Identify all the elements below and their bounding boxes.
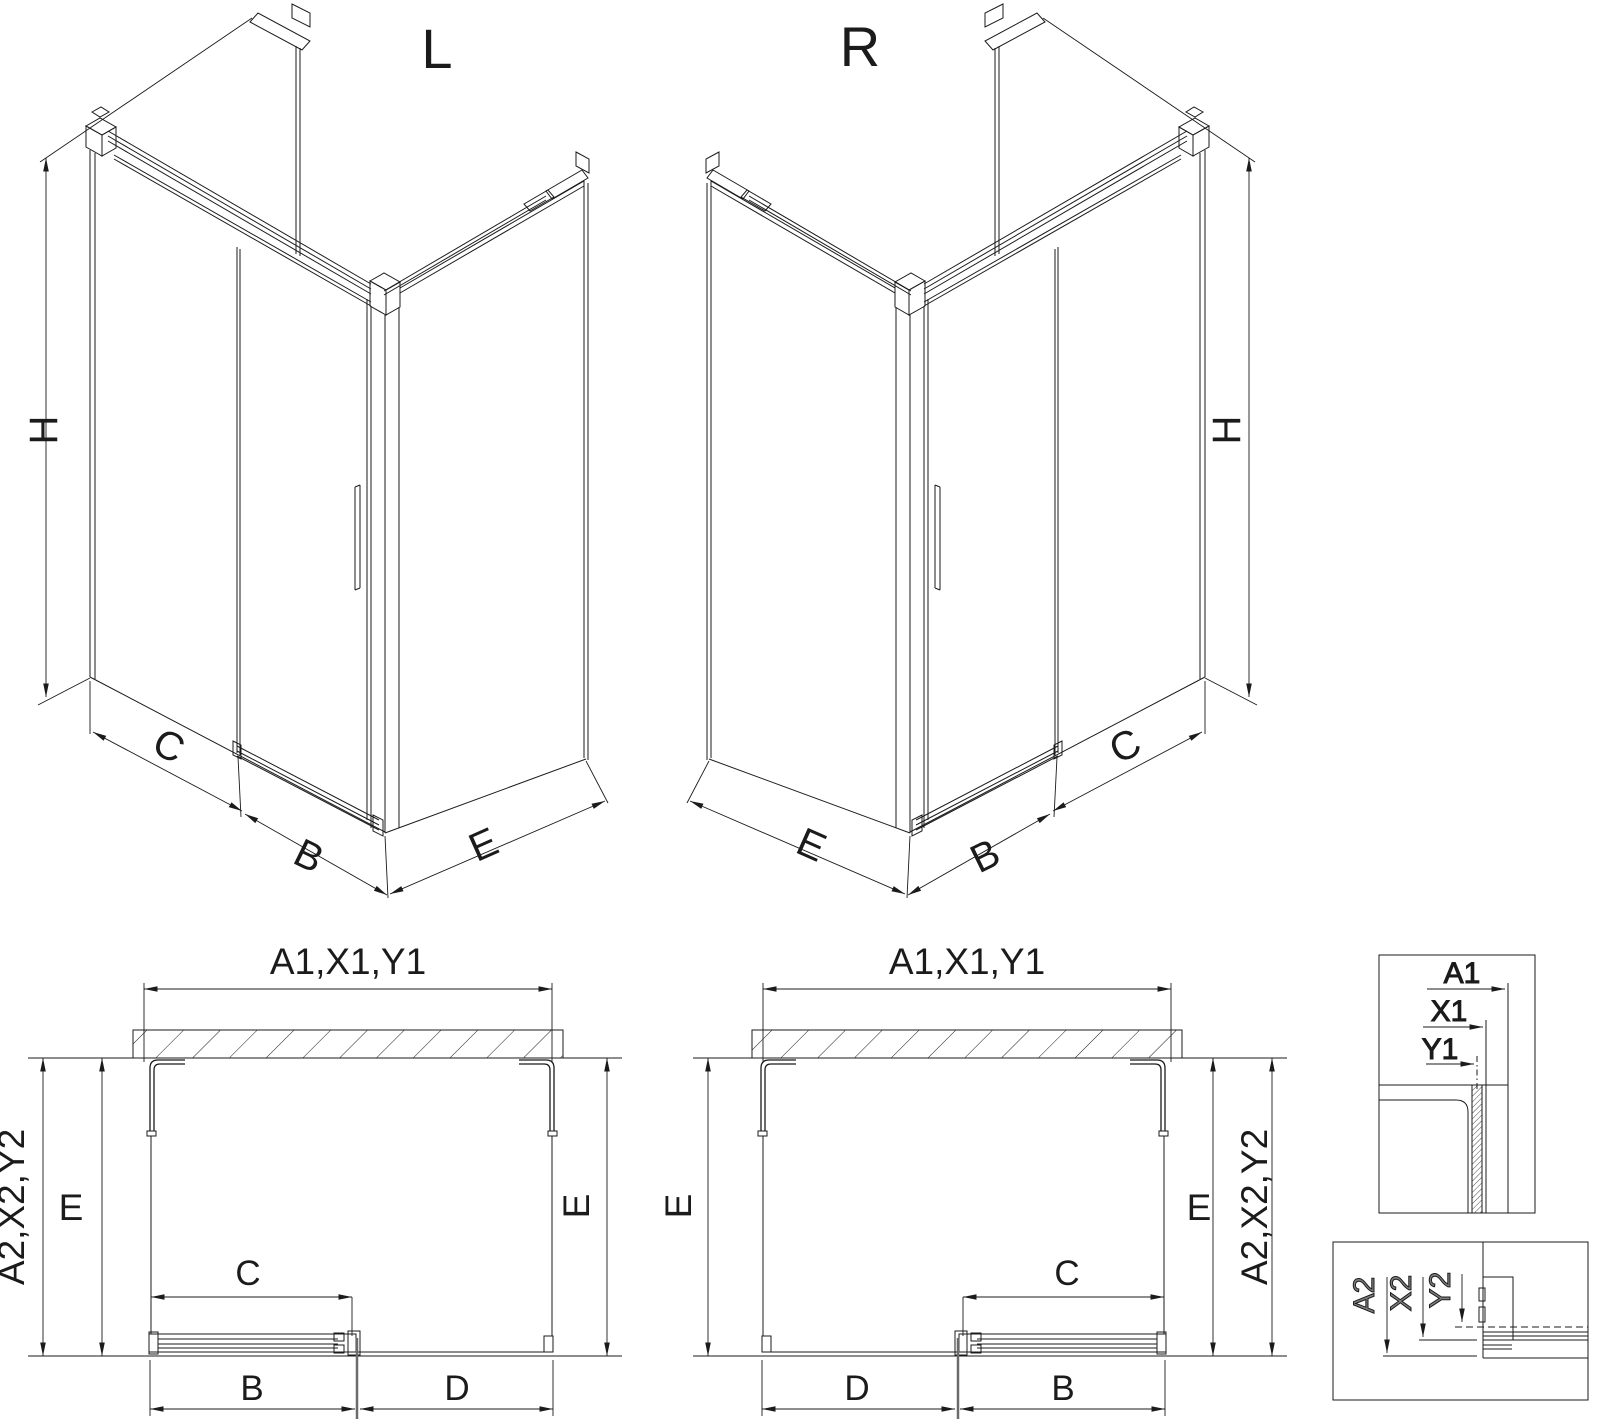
iso-view-right: R H C B E — [687, 4, 1257, 898]
iso-right-dim-height-label: H — [1205, 416, 1249, 445]
detail-bottom-dim-a-label: A2 — [1348, 1277, 1381, 1314]
plan-view-left: A1,X1,Y1 A2,X2,Y2 E E C B D — [0, 941, 622, 1419]
plan-left-depth-right-label: E — [556, 1194, 597, 1219]
iso-left-title: L — [421, 17, 452, 80]
plan-view-right: A1,X1,Y1 E A2,X2,Y2 E C D B — [658, 941, 1287, 1419]
plan-left-total-width-label: A1,X1,Y1 — [270, 941, 426, 982]
detail-top-dim-a-label: A1 — [1444, 957, 1481, 990]
detail-bottom-dim-x-label: X2 — [1385, 1275, 1418, 1312]
plan-left-slide-label: C — [235, 1254, 260, 1293]
iso-right-title: R — [840, 15, 880, 78]
plan-right-panel-width-label: D — [844, 1369, 869, 1408]
iso-left-dim-side-label: E — [463, 820, 505, 871]
plan-left-depth-left-label: E — [59, 1187, 84, 1228]
detail-view-bottom: A2 X2 Y2 — [1333, 1242, 1588, 1400]
plan-left-door-width-label: B — [240, 1369, 263, 1408]
iso-view-left: L H C B E — [22, 4, 608, 898]
plan-right-door-width-label: B — [1051, 1369, 1074, 1408]
plan-right-depth-left-label: E — [658, 1194, 699, 1219]
iso-left-dim-panel-label: C — [146, 720, 191, 772]
detail-top-dim-x-label: X1 — [1431, 995, 1468, 1028]
technical-drawing-canvas: L H C B E R H C B E A1,X1,Y1 A2,X2,Y2 E … — [0, 0, 1600, 1423]
iso-right-dim-door-label: B — [964, 831, 1007, 882]
iso-left-dim-door-label: B — [287, 831, 330, 882]
plan-right-wall-hatch — [752, 1030, 1182, 1058]
iso-right-dim-side-label: E — [790, 820, 832, 871]
plan-right-total-width-label: A1,X1,Y1 — [889, 941, 1045, 982]
iso-left-dim-height-label: H — [22, 416, 66, 445]
plan-left-total-depth-label: A2,X2,Y2 — [0, 1129, 32, 1285]
detail-top-dim-y-label: Y1 — [1422, 1033, 1459, 1066]
plan-left-wall-hatch — [133, 1030, 563, 1058]
detail-bottom-dim-y-label: Y2 — [1424, 1272, 1457, 1309]
plan-right-slide-label: C — [1054, 1254, 1079, 1293]
plan-right-total-depth-label: A2,X2,Y2 — [1234, 1129, 1275, 1285]
detail-view-top: A1 X1 Y1 — [1379, 955, 1535, 1213]
plan-right-depth-right-label: E — [1187, 1187, 1212, 1228]
drawing-page: L H C B E R H C B E A1,X1,Y1 A2,X2,Y2 E … — [0, 0, 1600, 1423]
plan-left-panel-width-label: D — [444, 1369, 469, 1408]
